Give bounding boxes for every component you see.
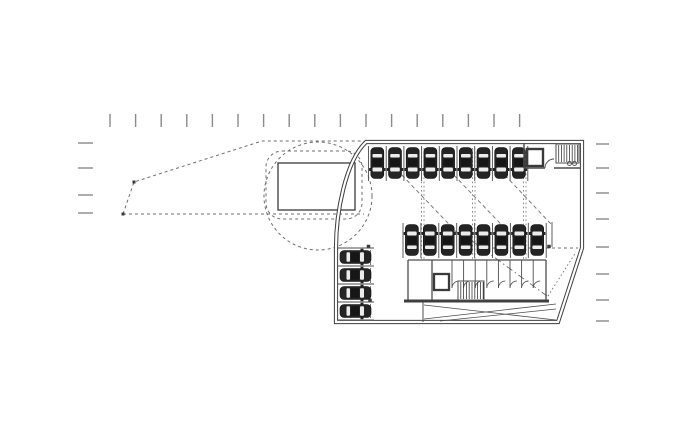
door-swing-arc (498, 281, 505, 288)
rect-outline (434, 274, 449, 290)
parking-row-top (369, 146, 528, 181)
car (340, 285, 371, 301)
door-swing-arc (522, 281, 529, 288)
stair-core (524, 143, 580, 168)
site-ticks-right (596, 144, 609, 321)
car (475, 148, 491, 179)
car (422, 225, 438, 256)
car (440, 148, 456, 179)
car (475, 225, 491, 256)
car (340, 303, 371, 319)
car (440, 225, 456, 256)
car (457, 225, 473, 256)
marker-square (122, 213, 125, 216)
marker-square (547, 245, 551, 249)
car (405, 148, 421, 179)
car (422, 148, 438, 179)
car (458, 148, 474, 179)
rect-outline (556, 144, 579, 163)
parking-floor-plan-drawing (0, 0, 700, 424)
car (529, 225, 545, 256)
plan-line (424, 304, 556, 319)
car (340, 249, 371, 265)
parking-col-left (337, 248, 374, 320)
door-swing-arc (487, 281, 494, 288)
car (340, 267, 371, 283)
site-boundary-wedge (122, 141, 365, 216)
car (387, 148, 403, 179)
site-ticks-left (78, 143, 93, 213)
plan-line (424, 305, 556, 320)
door-swing-arc (475, 281, 482, 288)
arc-path (545, 159, 554, 168)
car (511, 225, 527, 256)
car (493, 148, 509, 179)
parking-row-mid (403, 222, 552, 258)
car (404, 225, 420, 256)
plan-line (500, 170, 551, 224)
car (493, 225, 509, 256)
door-swing-arc (510, 281, 517, 288)
floor-plan-page (0, 0, 700, 424)
storage-rooms (404, 260, 549, 301)
boundary-polyline (123, 141, 364, 214)
ramp (423, 302, 556, 322)
rect-outline (266, 151, 362, 219)
car (369, 148, 385, 179)
rect-outline (527, 149, 543, 166)
site-ticks-top (110, 114, 520, 127)
marker-square (133, 181, 136, 184)
